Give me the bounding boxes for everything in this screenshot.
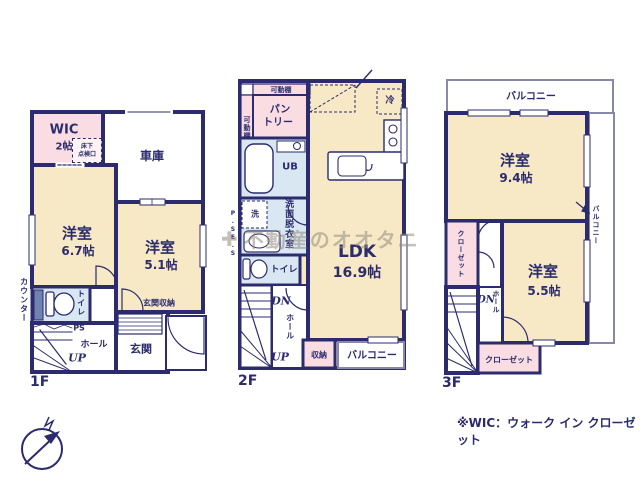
bedroom-55-label: 洋室 bbox=[528, 263, 558, 280]
floor2-tag: 2F bbox=[238, 373, 257, 389]
bathtub-icon bbox=[245, 144, 273, 193]
hall-label-1f: ホール bbox=[80, 340, 107, 350]
hall-label-2f: ホール bbox=[285, 314, 294, 341]
fridge-label: 冷 bbox=[385, 96, 394, 106]
pantry-label-1: パン bbox=[270, 104, 291, 116]
closet-bottom-label: クローゼット bbox=[485, 355, 533, 364]
wic-note: ※WIC：ウォーク イン クローゼット bbox=[457, 414, 640, 448]
bedroom-55-room bbox=[502, 221, 587, 343]
balcony-top-label: バルコニー bbox=[506, 91, 556, 103]
wic-label: WIC bbox=[50, 124, 79, 139]
floor-plan-canvas: WIC 2帖 床下 点検口 車庫 洋室 6.7帖 洋室 5.1帖 カウンター ト… bbox=[0, 0, 640, 480]
ub-label: UB bbox=[282, 161, 298, 173]
up-label-1f: UP bbox=[68, 353, 86, 366]
floorplan-3f bbox=[446, 80, 614, 373]
shelf-top-label: 可動棚 bbox=[271, 86, 292, 94]
north-compass-icon bbox=[22, 417, 62, 469]
floorplan-2f bbox=[240, 70, 407, 368]
porch bbox=[166, 316, 206, 370]
bedroom-51-label: 洋室 bbox=[145, 239, 175, 256]
balcony-right-label: バルコニー bbox=[592, 205, 600, 245]
hall-label-3f: ホール bbox=[492, 290, 500, 314]
bedroom-55-size: 5.5帖 bbox=[527, 285, 560, 299]
wic-size-label: 2帖 bbox=[56, 141, 73, 153]
ldk-size-label: 16.9帖 bbox=[333, 265, 382, 281]
counter-label: カウンター bbox=[19, 278, 28, 323]
toilet-label-1f: トイレ bbox=[76, 290, 85, 317]
garage-label: 車庫 bbox=[140, 150, 164, 164]
toilet-icon-1f bbox=[46, 292, 74, 316]
bedroom-67-label: 洋室 bbox=[62, 225, 92, 242]
bedroom-51-size: 5.1帖 bbox=[144, 259, 177, 273]
watermark-text: 不動産のオオタニ bbox=[244, 224, 420, 253]
entrance-storage-label: 玄関収納 bbox=[143, 298, 175, 307]
watermark-logo: ✚ bbox=[221, 227, 240, 251]
toilet-icon-2f bbox=[243, 259, 267, 279]
washer-label: 洗 bbox=[251, 209, 259, 218]
counter-fixture bbox=[34, 290, 43, 320]
bedroom-94-size: 9.4帖 bbox=[499, 172, 532, 186]
up-label-2f: UP bbox=[271, 352, 289, 365]
floor3-tag: 3F bbox=[442, 375, 461, 391]
bedroom-51-room bbox=[116, 202, 203, 312]
underfloor-hatch: 床下 点検口 bbox=[72, 138, 102, 163]
watermark: ✚ 不動産のオオタニ bbox=[221, 224, 420, 253]
storage-label-2f: 収納 bbox=[311, 350, 327, 359]
shelf-side-label: 可動棚 bbox=[243, 116, 251, 140]
floor1-tag: 1F bbox=[30, 374, 49, 390]
entrance-storage-shelf bbox=[118, 314, 162, 334]
balcony-label-2f: バルコニー bbox=[347, 350, 397, 362]
toilet-label-2f: トイレ bbox=[270, 265, 297, 275]
bedroom-67-size: 6.7帖 bbox=[61, 245, 94, 259]
bedroom-94-label: 洋室 bbox=[500, 152, 530, 169]
ps-label-1f: PS bbox=[73, 323, 85, 332]
closet-left-label: クローゼット bbox=[457, 230, 465, 278]
dn-label-2f: DN bbox=[271, 296, 291, 309]
entrance-label: 玄関 bbox=[130, 344, 152, 357]
pantry-label-2: トリー bbox=[263, 117, 293, 129]
